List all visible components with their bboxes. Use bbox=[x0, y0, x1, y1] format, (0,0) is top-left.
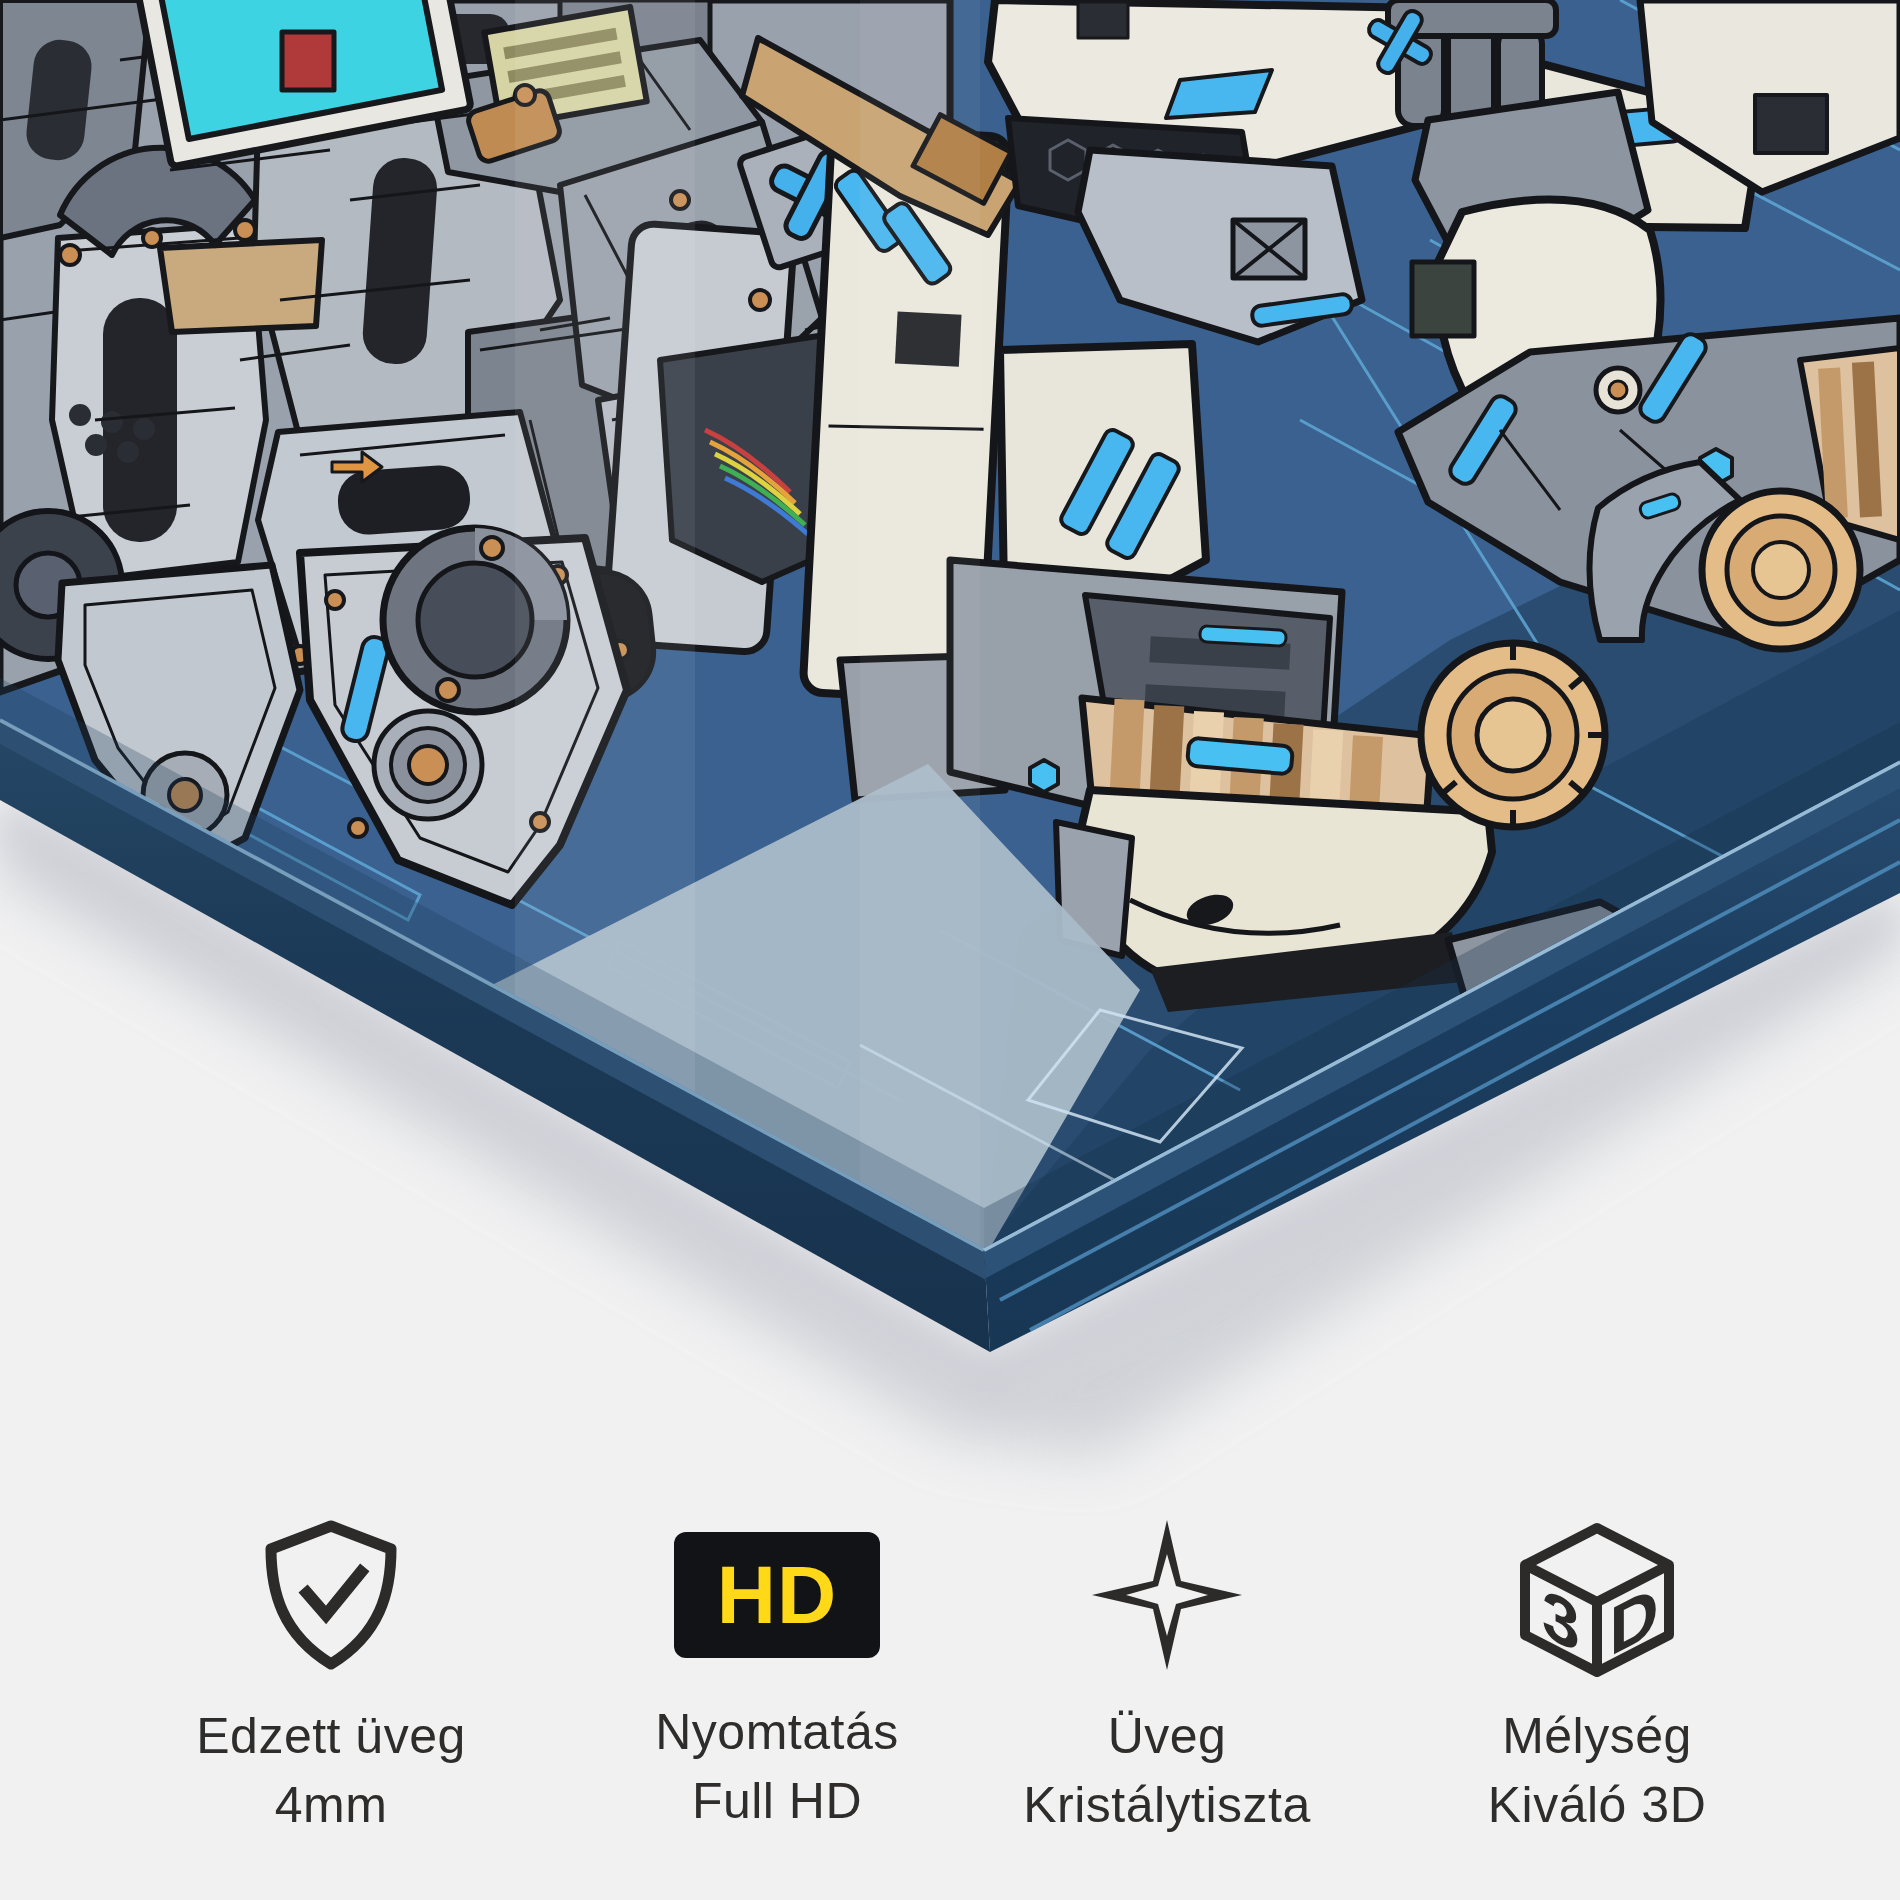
svg-text:D: D bbox=[1609, 1570, 1658, 1670]
